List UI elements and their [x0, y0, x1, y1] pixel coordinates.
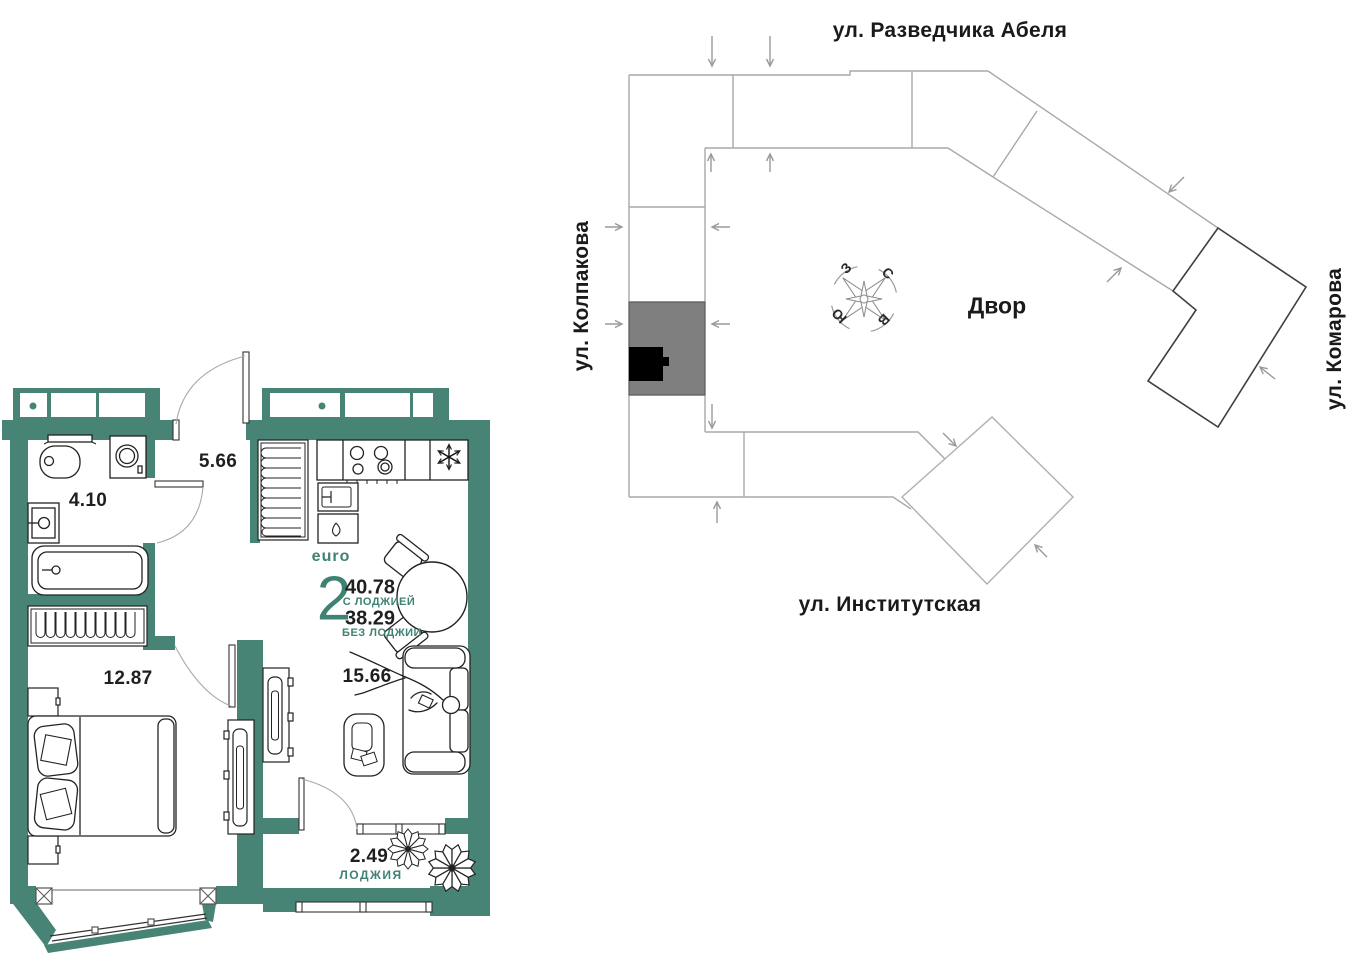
- nightstand: [28, 688, 60, 716]
- street-label-bottom: ул. Институтская: [799, 593, 982, 617]
- room-area-living: 15.66: [342, 666, 391, 688]
- bathroom-sink: [28, 503, 59, 543]
- site-plan: [605, 36, 1306, 584]
- wardrobe-bedroom: [28, 606, 147, 646]
- area-without-loggia-caption: БЕЗ ЛОДЖИИ: [342, 627, 422, 639]
- toilet: [40, 435, 96, 478]
- plan-drawing: [0, 0, 1362, 960]
- pillow: [33, 723, 79, 778]
- area-with-loggia-caption: С ЛОДЖИЕЙ: [343, 596, 416, 608]
- street-label-left: ул. Колпакова: [570, 221, 594, 372]
- highlighted-section: [629, 302, 705, 395]
- room-area-bathroom: 4.10: [69, 490, 107, 512]
- sofa: [403, 646, 470, 774]
- kitchen-counter: [317, 440, 468, 543]
- bed: [28, 716, 176, 836]
- wing-outer-edge: [988, 71, 1218, 228]
- bathtub: [32, 546, 148, 595]
- room-area-loggia: 2.49: [350, 846, 388, 868]
- entry-door: [173, 352, 249, 440]
- loggia-door: [299, 778, 357, 830]
- coffee-table: [344, 714, 384, 776]
- tv-unit-living: [263, 668, 293, 762]
- building-outline: [629, 71, 1218, 509]
- street-label-right: ул. Комарова: [1323, 268, 1347, 410]
- courtyard-label: Двор: [968, 293, 1026, 320]
- room-area-bedroom: 12.87: [103, 668, 152, 690]
- bathroom-fixtures: [28, 435, 148, 595]
- wing-divider: [993, 111, 1037, 177]
- bathroom-door: [155, 481, 203, 543]
- loggia-caption: ЛОДЖИЯ: [339, 868, 402, 882]
- street-label-top: ул. Разведчика Абеля: [833, 19, 1067, 43]
- washing-machine: [110, 436, 146, 478]
- wardrobe-hall: [258, 440, 308, 540]
- kitchen-sink: [318, 483, 358, 543]
- bedroom-door: [175, 645, 235, 707]
- vent-shafts: [20, 393, 433, 417]
- floorplan-page: 4.10 5.66 12.87 15.66 2.49 ЛОДЖИЯ euro 2…: [0, 0, 1362, 960]
- tv-unit-bedroom: [224, 720, 254, 834]
- apartment-marker: [629, 347, 669, 381]
- plant-icon: [388, 829, 428, 869]
- nightstand: [28, 836, 60, 864]
- pillow: [33, 777, 78, 831]
- wing-inner-edge: [993, 177, 1173, 291]
- room-area-hallway: 5.66: [199, 451, 237, 473]
- floor-plan: [2, 352, 490, 953]
- building-end-block: [1148, 228, 1306, 427]
